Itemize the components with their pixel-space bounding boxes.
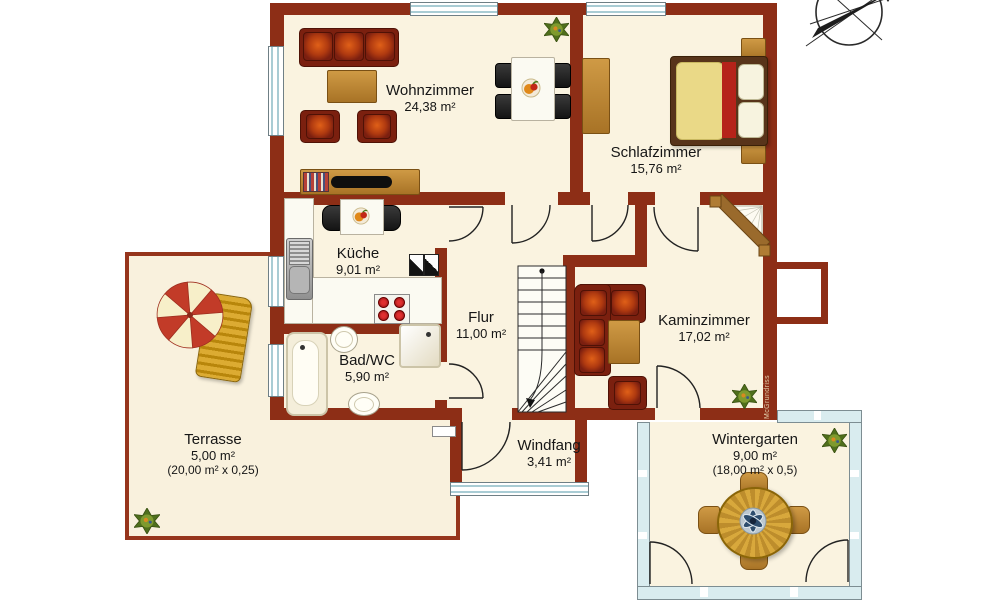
- sofa-cushion: [365, 32, 395, 61]
- sofa-cushion: [611, 290, 639, 316]
- dining-table: [511, 57, 555, 121]
- wall-bedroom-south: [700, 192, 763, 205]
- entrance-step: [432, 426, 456, 437]
- wintergarten-glass-bottom: [637, 586, 862, 600]
- sink-drainer: [289, 241, 310, 265]
- tv: [331, 176, 392, 188]
- bathtub-drain: [300, 345, 305, 350]
- entrance-door-glazing: [450, 482, 589, 496]
- wall-mid: [558, 192, 590, 205]
- mullion: [638, 532, 647, 539]
- room-label-schlafzimmer: Schlafzimmer 15,76 m²: [611, 144, 702, 176]
- room-label-wintergarten: Wintergarten 9,00 m² (18,00 m² x 0,5): [712, 431, 798, 477]
- sink-basin: [289, 266, 310, 294]
- sofa-cushion: [579, 319, 605, 346]
- armchair-cushion: [306, 114, 334, 139]
- sofa-cushion: [303, 32, 333, 61]
- sofa-cushion: [334, 32, 364, 61]
- sofa-cushion: [580, 290, 607, 316]
- wardrobe: [582, 58, 610, 134]
- stove-burner: [394, 297, 405, 308]
- wall-exterior-top: [270, 3, 777, 15]
- sofa-cushion: [579, 347, 605, 373]
- room-label-kaminzimmer: Kaminzimmer 17,02 m²: [658, 312, 750, 344]
- round-table: [717, 487, 793, 559]
- kitchen-appliance: [409, 254, 424, 276]
- room-label-kueche: Küche 9,01 m²: [336, 245, 380, 277]
- shower-drain: [426, 332, 431, 337]
- mullion: [850, 532, 859, 539]
- bed-runner: [722, 62, 736, 138]
- coffee-table: [327, 70, 377, 103]
- kitchen-appliance: [424, 254, 439, 276]
- stereo: [303, 172, 329, 192]
- armchair-cushion: [363, 114, 391, 139]
- room-label-terrasse: Terrasse 5,00 m² (20,00 m² x 0,25): [167, 431, 258, 477]
- kitchen-table: [340, 199, 384, 235]
- shower: [399, 324, 441, 368]
- window: [410, 2, 498, 16]
- window: [268, 344, 284, 397]
- wash-basin-inner: [335, 331, 353, 348]
- armchair-cushion: [614, 381, 641, 405]
- pillow: [738, 102, 764, 138]
- stove-burner: [394, 310, 405, 321]
- coffee-table: [608, 320, 640, 364]
- room-label-bad: Bad/WC 5,90 m²: [339, 352, 395, 384]
- stove-burner: [378, 297, 389, 308]
- mullion: [790, 587, 798, 597]
- window: [268, 256, 284, 307]
- compass-icon: [806, 0, 898, 46]
- wall-mid-stub: [628, 192, 655, 205]
- mullion: [700, 587, 708, 597]
- mullion: [814, 411, 821, 420]
- room-label-wohnzimmer: Wohnzimmer 24,38 m²: [386, 82, 474, 114]
- room-label-windfang: Windfang 3,41 m²: [517, 437, 580, 469]
- window: [586, 2, 666, 16]
- wintergarten-glass-left: [637, 422, 650, 592]
- bed-mattress: [676, 62, 724, 140]
- room-label-flur: Flur 11,00 m²: [456, 309, 506, 341]
- toilet-seat: [354, 397, 374, 412]
- bathtub-basin: [292, 340, 319, 406]
- mullion: [850, 470, 859, 477]
- mullion: [638, 470, 647, 477]
- kitchen-chair: [322, 205, 342, 231]
- floorplan-canvas: Wohnzimmer 24,38 m² Schlafzimmer 15,76 m…: [0, 0, 1000, 600]
- wall-kamin-north: [563, 255, 647, 267]
- stove-burner: [378, 310, 389, 321]
- window: [268, 46, 284, 136]
- kitchen-chair: [381, 205, 401, 231]
- pillow: [738, 64, 764, 100]
- wintergarten-glass-right: [849, 422, 862, 592]
- wall-kamin-stub: [635, 205, 647, 255]
- watermark: McGrundriss: [764, 375, 771, 419]
- chimney-outline: [770, 262, 828, 324]
- wall-bath-hall: [435, 400, 447, 408]
